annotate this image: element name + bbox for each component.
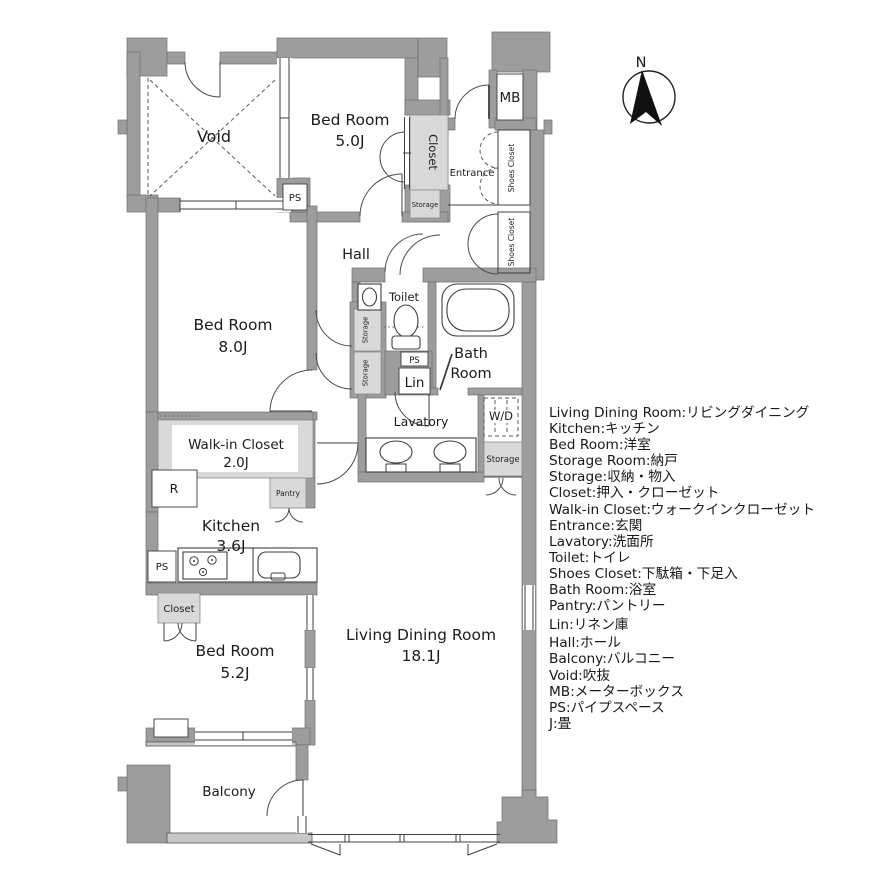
room-label-wic-size: 2.0J (223, 455, 248, 471)
shoes-closet-lower-label: Shoes Closet (507, 218, 516, 266)
legend-item: Pantry:パントリー (549, 598, 815, 614)
entrance-folding-door-arc (480, 132, 498, 168)
bathtub (442, 284, 514, 336)
legend-item: Toilet:トイレ (549, 550, 815, 566)
shoes-closet-upper-label: Shoes Closet (507, 144, 516, 192)
room-label-living-size: 18.1J (401, 647, 440, 665)
room-label-entrance: Entrance (450, 168, 495, 179)
legend-item: PS:パイプスペース (549, 700, 815, 716)
front-door-arc (455, 85, 489, 119)
legend-item: Lin:リネン庫 (549, 617, 815, 633)
legend: Living Dining Room:リビングダイニング Kitchen:キッチ… (549, 405, 815, 732)
storage-top-label: Storage (412, 201, 439, 209)
north-arrow-icon (630, 70, 662, 126)
legend-item: Walk-in Closet:ウォークインクローゼット (549, 502, 815, 518)
legend-item: J:畳 (549, 716, 815, 732)
wd-label: W/D (489, 409, 513, 423)
storage-living-label: Storage (486, 455, 519, 465)
legend-item: Balcony:バルコニー (549, 651, 815, 667)
legend-item: Bath Room:浴室 (549, 582, 815, 598)
legend-item: Storage Room:納戸 (549, 453, 815, 469)
ps-label-middle: PS (409, 356, 420, 366)
toilet-fixture (392, 305, 420, 349)
kitchen-counter (178, 548, 317, 582)
room-label-bath-line2: Room (450, 366, 491, 382)
room-label-kitchen-size: 3.6J (216, 537, 245, 555)
legend-item: Kitchen:キッチン (549, 421, 815, 437)
legend-item: Void:吹抜 (549, 668, 815, 684)
legend-item: Shoes Closet:下駄箱・下足入 (549, 566, 815, 582)
room-label-bedroom8-name: Bed Room (193, 316, 272, 334)
closet-bedroom52-label: Closet (163, 604, 194, 615)
wall-niche-box (154, 719, 188, 737)
north-label: N (636, 55, 647, 71)
legend-item: Living Dining Room:リビングダイニング (549, 405, 815, 421)
ps-label-top: PS (289, 193, 301, 204)
room-label-bedroom52-name: Bed Room (195, 642, 274, 660)
lin-label: Lin (405, 375, 425, 391)
room-label-bedroom5-name: Bed Room (310, 111, 389, 129)
room-label-toilet: Toilet (388, 290, 420, 304)
vanity-double-sink (366, 438, 476, 472)
floor-plan-page: N Void Bed Room 5.0J Bed Room 8.0J Bed R… (0, 0, 872, 872)
storage-cell-upper-label: Storage (362, 317, 370, 344)
closet-bedroom5-label: Closet (426, 134, 440, 170)
toilet-sink (358, 284, 381, 310)
room-label-balcony: Balcony (202, 784, 256, 800)
ps-label-kitchen: PS (156, 562, 168, 573)
room-label-hall: Hall (342, 247, 370, 263)
room-label-living-name: Living Dining Room (346, 626, 496, 644)
mb-label: MB (500, 90, 521, 106)
room-label-bedroom5-size: 5.0J (335, 132, 364, 150)
room-label-void: Void (197, 127, 231, 146)
legend-item: Hall:ホール (549, 635, 815, 651)
room-label-bedroom8-size: 8.0J (218, 338, 247, 356)
room-label-wic-name: Walk-in Closet (188, 437, 284, 453)
room-label-lavatory: Lavatory (394, 414, 449, 429)
refrigerator-label: R (170, 481, 179, 496)
room-label-bath-line1: Bath (454, 346, 488, 362)
compass: N (623, 55, 675, 126)
legend-item: Storage:収納・物入 (549, 469, 815, 485)
legend-item: Closet:押入・クローゼット (549, 485, 815, 501)
storage-cell-lower-label: Storage (362, 360, 370, 387)
legend-item: MB:メーターボックス (549, 684, 815, 700)
pantry-label: Pantry (276, 489, 301, 498)
legend-item: Entrance:玄関 (549, 518, 815, 534)
legend-item: Bed Room:洋室 (549, 437, 815, 453)
legend-item: Lavatory:洗面所 (549, 534, 815, 550)
kitchen-sink (258, 552, 300, 578)
room-label-kitchen-name: Kitchen (202, 517, 260, 535)
room-label-bedroom52-size: 5.2J (220, 664, 249, 682)
